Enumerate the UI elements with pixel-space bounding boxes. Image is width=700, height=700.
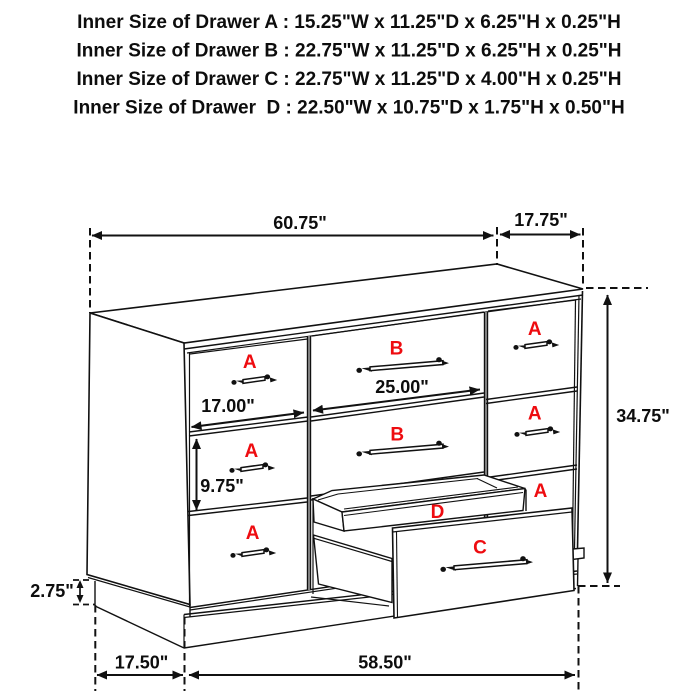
- svg-text:A: A: [243, 352, 257, 373]
- svg-text:60.75": 60.75": [273, 213, 327, 233]
- svg-text:25.00": 25.00": [375, 377, 429, 397]
- svg-text:A: A: [534, 481, 548, 502]
- svg-text:Inner Size of Drawer D : 22.5: Inner Size of Drawer D : 22.50"W x 10.75…: [73, 98, 624, 119]
- svg-text:C: C: [473, 537, 487, 558]
- svg-text:D: D: [431, 502, 445, 523]
- svg-text:A: A: [245, 441, 259, 462]
- svg-text:B: B: [390, 339, 404, 360]
- svg-text:17.75": 17.75": [514, 210, 568, 230]
- svg-text:Inner Size of Drawer C : 22.75: Inner Size of Drawer C : 22.75"W x 11.25…: [76, 69, 621, 90]
- svg-text:17.50": 17.50": [115, 653, 169, 673]
- svg-text:B: B: [390, 424, 404, 445]
- svg-text:58.50": 58.50": [358, 653, 412, 673]
- svg-text:Inner Size of Drawer B : 22.75: Inner Size of Drawer B : 22.75"W x 11.25…: [76, 41, 621, 62]
- svg-text:17.00": 17.00": [201, 396, 255, 416]
- svg-text:A: A: [528, 319, 542, 340]
- svg-text:Inner Size of Drawer A : 15.25: Inner Size of Drawer A : 15.25"W x 11.25…: [77, 12, 621, 33]
- svg-text:A: A: [246, 523, 260, 544]
- svg-text:A: A: [528, 403, 542, 424]
- svg-text:34.75": 34.75": [616, 406, 670, 426]
- svg-text:2.75": 2.75": [30, 581, 74, 601]
- svg-text:9.75": 9.75": [200, 476, 244, 496]
